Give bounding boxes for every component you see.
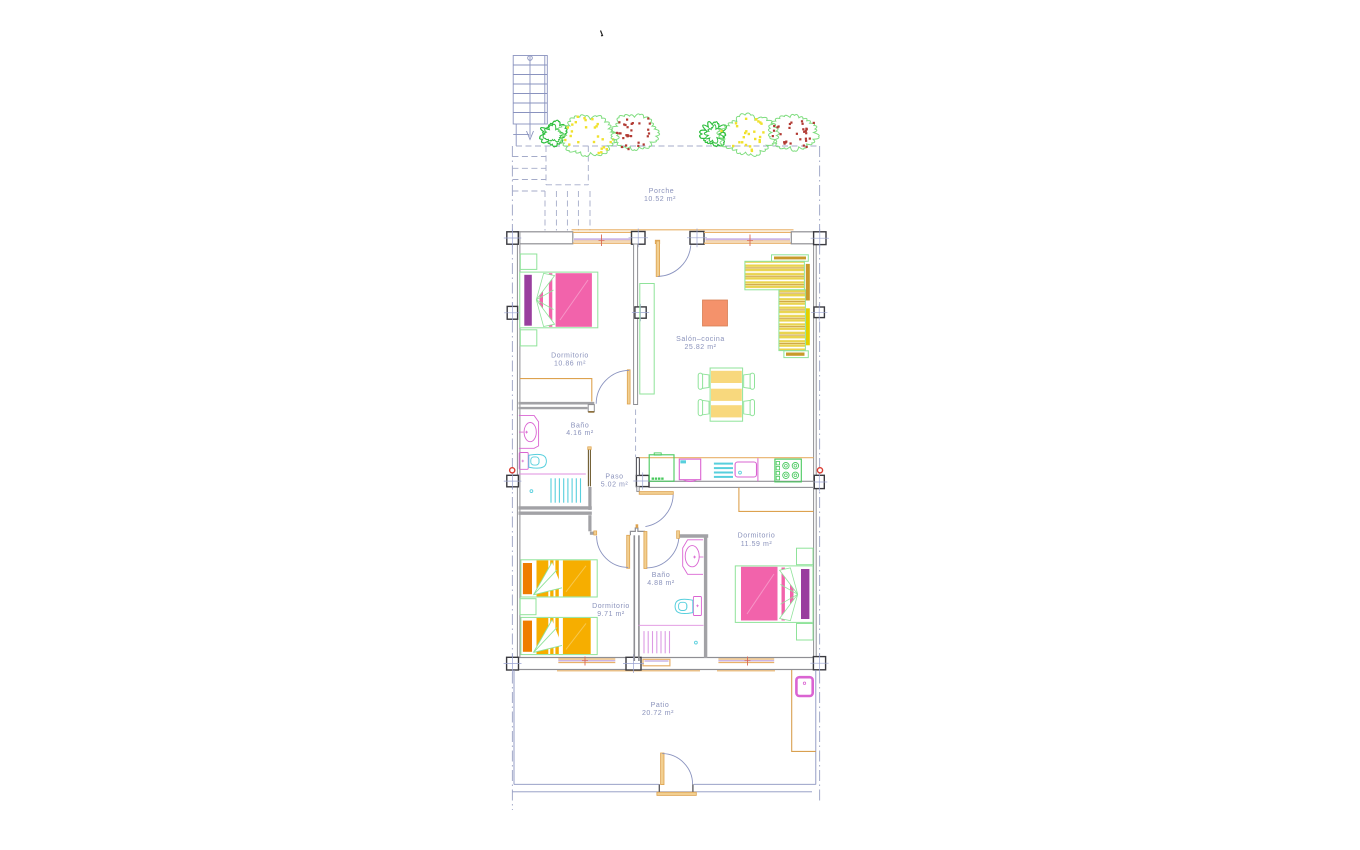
svg-text:Dormitorio: Dormitorio [592, 603, 630, 610]
svg-text:4.88 m²: 4.88 m² [647, 580, 675, 587]
svg-text:Baño: Baño [571, 423, 590, 430]
svg-text:25.82 m²: 25.82 m² [684, 344, 716, 351]
svg-text:5.02 m²: 5.02 m² [601, 482, 629, 489]
svg-text:10.86 m²: 10.86 m² [554, 361, 586, 368]
svg-text:Paso: Paso [605, 474, 623, 481]
svg-text:Patio: Patio [651, 702, 670, 709]
svg-text:4.16 m²: 4.16 m² [566, 430, 594, 437]
svg-text:Dormitorio: Dormitorio [738, 533, 776, 540]
svg-text:9.71 m²: 9.71 m² [597, 611, 625, 618]
svg-text:Dormitorio: Dormitorio [551, 353, 589, 360]
svg-text:Baño: Baño [652, 572, 671, 579]
svg-text:10.52 m²: 10.52 m² [644, 196, 676, 203]
svg-text:Salón–cocina: Salón–cocina [676, 336, 725, 343]
svg-text:Porche: Porche [649, 188, 674, 195]
svg-text:11.59 m²: 11.59 m² [741, 541, 773, 548]
svg-text:20.72 m²: 20.72 m² [642, 710, 674, 717]
